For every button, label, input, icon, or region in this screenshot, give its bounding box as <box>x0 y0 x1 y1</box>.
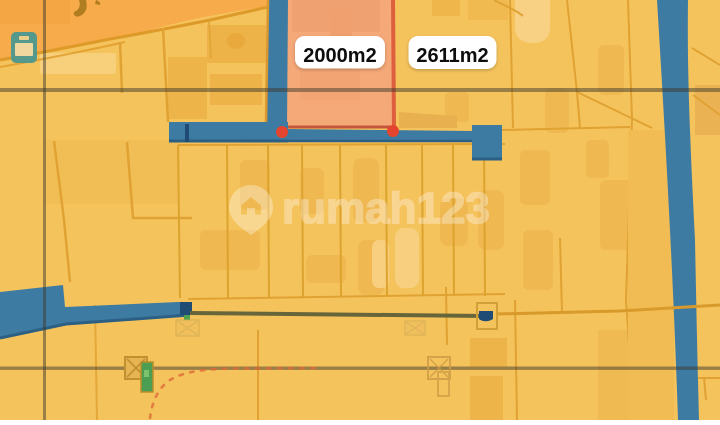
svg-text:2000m2: 2000m2 <box>303 45 376 67</box>
svg-text:rumah123: rumah123 <box>282 184 490 233</box>
svg-text:2611m2: 2611m2 <box>416 45 488 67</box>
